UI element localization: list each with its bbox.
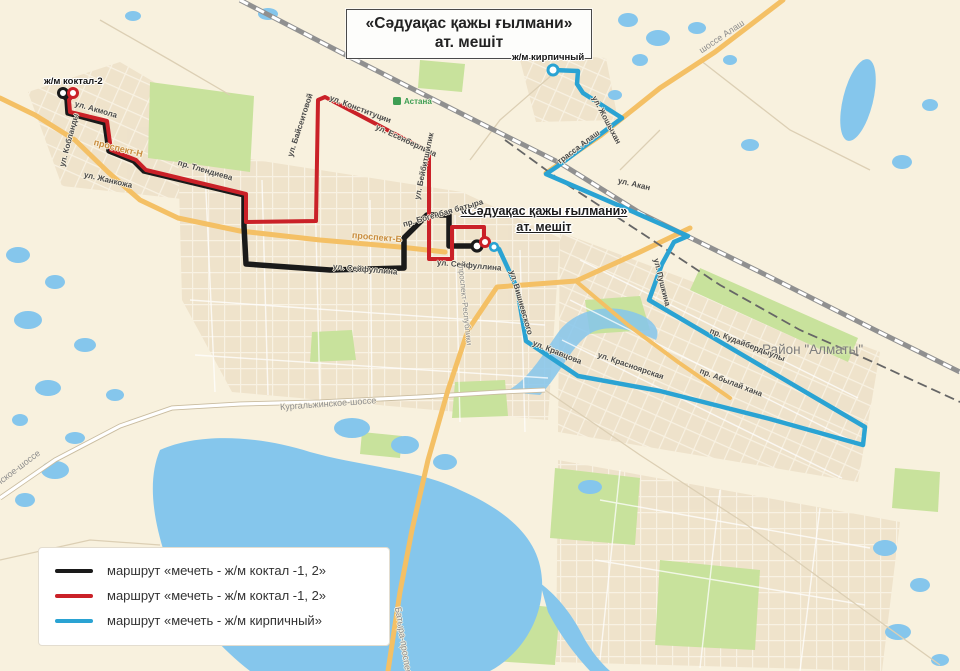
- mosque-label-line2: ат. мешіт: [516, 220, 571, 234]
- legend-line-black: [55, 569, 93, 573]
- legend-label-blue: маршрут «мечеть - ж/м кирпичный»: [107, 613, 322, 628]
- map-title-line1: «Сәдуақас қажы ғылмани»: [349, 14, 589, 33]
- legend-line-blue: [55, 619, 93, 623]
- mosque-label: «Сәдуақас қажы ғылмани» ат. мешіт: [455, 203, 633, 236]
- legend-row-red: маршрут «мечеть - ж/м коктал -1, 2»: [51, 583, 377, 608]
- koktal-terminal-markers: [59, 89, 78, 98]
- city-map[interactable]: «Сәдуақас қажы ғылмани» ат. мешіт «Сәдуа…: [0, 0, 960, 671]
- legend-label-red: маршрут «мечеть - ж/м коктал -1, 2»: [107, 588, 326, 603]
- legend-row-black: маршрут «мечеть - ж/м коктал -1, 2»: [51, 558, 377, 583]
- route-legend: маршрут «мечеть - ж/м коктал -1, 2» марш…: [38, 547, 390, 646]
- legend-line-red: [55, 594, 93, 598]
- legend-row-blue: маршрут «мечеть - ж/м кирпичный»: [51, 608, 377, 633]
- district-almaty-label: Район "Алматы": [762, 342, 863, 357]
- place-koktal-label: ж/м коктал-2: [44, 76, 103, 87]
- kirpichny-terminal-marker: [548, 65, 558, 75]
- place-kirpichny-label: ж/м кирпичный: [512, 52, 584, 63]
- train-station-icon: [393, 97, 401, 105]
- mosque-label-line1: «Сәдуақас қажы ғылмани»: [461, 204, 628, 218]
- map-title-line2: ат. мешіт: [349, 33, 589, 52]
- legend-label-black: маршрут «мечеть - ж/м коктал -1, 2»: [107, 563, 326, 578]
